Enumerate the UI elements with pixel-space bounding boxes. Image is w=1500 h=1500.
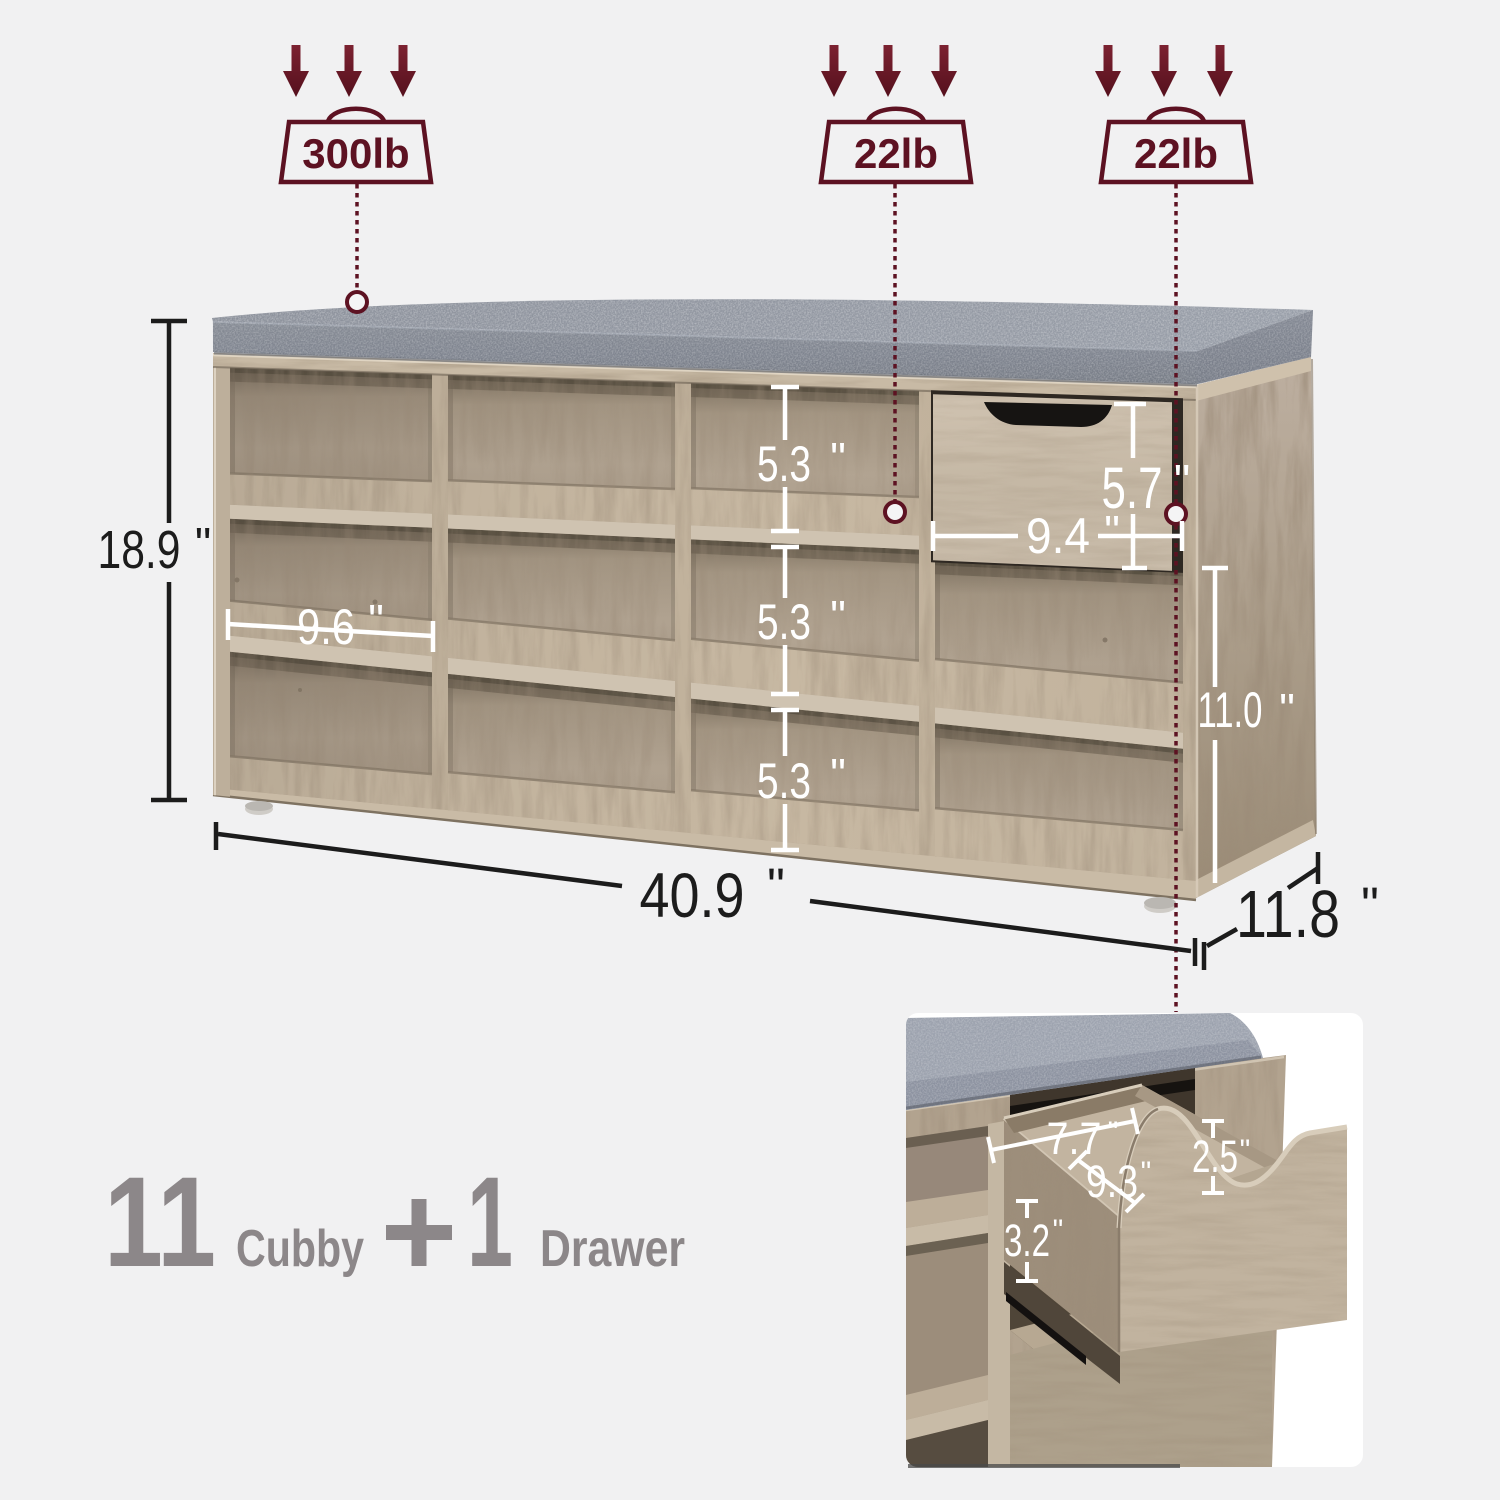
svg-text:5.3: 5.3 — [757, 436, 811, 492]
svg-text:3.2: 3.2 — [1004, 1215, 1050, 1266]
svg-text:9.6: 9.6 — [297, 599, 355, 655]
svg-text:11.0: 11.0 — [1198, 682, 1263, 738]
svg-text:9.4: 9.4 — [1026, 508, 1090, 564]
svg-text:": " — [368, 596, 384, 645]
svg-text:": " — [1174, 455, 1190, 507]
svg-text:": " — [1108, 1116, 1119, 1149]
svg-text:": " — [1104, 507, 1120, 556]
svg-text:Cubby: Cubby — [236, 1220, 364, 1278]
svg-text:": " — [1053, 1214, 1064, 1247]
svg-text:": " — [830, 592, 846, 641]
svg-text:5.3: 5.3 — [757, 753, 811, 809]
svg-text:18.9: 18.9 — [98, 520, 181, 580]
svg-text:Drawer: Drawer — [540, 1220, 685, 1278]
svg-text:": " — [1240, 1134, 1251, 1167]
svg-text:11: 11 — [104, 1151, 216, 1294]
svg-text:5.3: 5.3 — [757, 594, 811, 650]
svg-text:": " — [195, 518, 211, 570]
svg-text:22lb: 22lb — [1134, 130, 1218, 177]
svg-text:2.5: 2.5 — [1192, 1131, 1238, 1182]
svg-text:11.8: 11.8 — [1236, 877, 1340, 952]
svg-text:22lb: 22lb — [854, 130, 938, 177]
svg-text:": " — [1361, 877, 1379, 933]
svg-text:": " — [1279, 685, 1295, 734]
svg-text:40.9: 40.9 — [640, 861, 745, 931]
svg-text:300lb: 300lb — [302, 130, 409, 177]
svg-text:": " — [830, 434, 846, 483]
svg-text:": " — [767, 858, 785, 914]
svg-text:9.3: 9.3 — [1086, 1156, 1138, 1207]
svg-text:": " — [1141, 1156, 1152, 1189]
svg-text:1: 1 — [467, 1151, 513, 1294]
svg-text:": " — [830, 750, 846, 799]
